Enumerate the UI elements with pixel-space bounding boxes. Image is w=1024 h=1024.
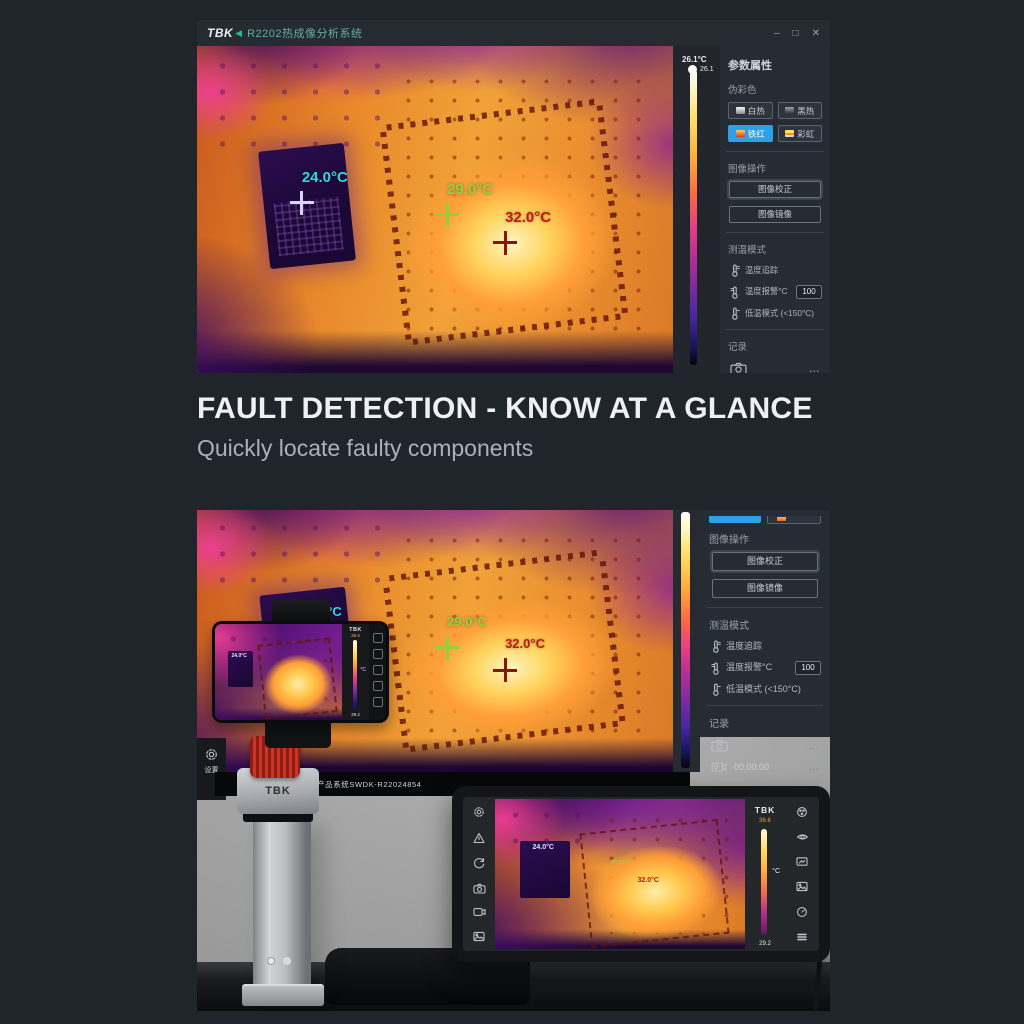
video-record-icon[interactable] (711, 761, 727, 773)
image-mirror-button[interactable]: 图像镜像 (729, 206, 821, 223)
palette-icon[interactable] (796, 806, 808, 818)
divider (707, 607, 823, 608)
palette-button-black-hot[interactable]: 黑热 (778, 102, 823, 119)
thermometer-icon (711, 683, 721, 696)
thermal-image: 24.0°C 29.0°C 32.0°C (197, 46, 673, 373)
export-image-icon[interactable] (796, 856, 808, 867)
temp-marker-32: 32.0°C (493, 658, 517, 682)
gear-icon[interactable] (473, 806, 485, 818)
temp-marker-32: 32.0°C (493, 231, 517, 255)
divider (707, 705, 823, 706)
palette-button-iron-red[interactable]: 铁红 (728, 125, 773, 142)
scale-max-value: 26.1 (700, 66, 714, 73)
temp-marker-29: 29.0°C (435, 203, 459, 227)
palette-button-rainbow-cropped[interactable] (767, 516, 821, 524)
crosshair-icon (493, 231, 517, 255)
thermometer-icon (711, 640, 721, 653)
color-scale-bar (353, 640, 357, 708)
temp-label: 24.0°C (232, 653, 247, 659)
temp-alarm-row[interactable]: 温度报警°C 100 (709, 661, 821, 675)
white-hot-icon (736, 107, 745, 114)
low-temp-mode-row[interactable]: 低温模式 (<150°C) (709, 683, 821, 696)
image-correction-button[interactable]: 图像校正 (712, 552, 818, 571)
temp-tracking-row[interactable]: 温度追踪 (728, 264, 822, 277)
tablet-thermal-image: 24.0°C 29.0°C 32.0°C (495, 799, 745, 949)
window-controls: – □ ✕ (774, 28, 820, 39)
temp-marker-29: 29.0°C (435, 636, 459, 660)
tablet-right-toolbar (785, 797, 819, 951)
temp-alarm-row[interactable]: 温度报警°C 100 (728, 285, 822, 299)
title-bar: TBK ◀ R2202热成像分析系统 – □ ✕ (197, 20, 830, 46)
temp-label: 32.0°C (505, 209, 551, 226)
menu-icon[interactable] (796, 932, 808, 942)
pseudo-color-label: 伪彩色 (728, 82, 822, 96)
window-title: R2202热成像分析系统 (247, 25, 362, 41)
scale-max-value: 36.6 (745, 818, 785, 824)
phone-color-scale: TBK 36.6 °C 29.2 (342, 624, 369, 720)
divider (726, 232, 824, 233)
iron-red-icon (736, 130, 745, 137)
warning-icon[interactable] (473, 832, 485, 844)
snapshot-more-button[interactable]: ... (808, 741, 819, 751)
record-video-row: 00:00:00 ... (709, 761, 821, 773)
monitor-product-label: 产品系统SWDK-R22024854 (317, 779, 422, 790)
stand-base-feet (242, 984, 324, 1006)
scale-min-value: 29.2 (342, 712, 369, 717)
phone-screen: 24.0°C TBK 36.6 °C 29.2 (215, 624, 386, 720)
temp-label: 24.0°C (533, 844, 554, 851)
crosshair-icon (290, 191, 314, 215)
phone-thermal-image: 24.0°C (215, 624, 342, 720)
image-correction-button[interactable]: 图像校正 (729, 181, 821, 198)
crosshair-icon (435, 203, 459, 227)
image-ops-label: 图像操作 (709, 531, 821, 546)
tablet-screen: 24.0°C 29.0°C 32.0°C TBK 36.6 °C 29.2 (463, 797, 819, 951)
palette-button-rainbow[interactable]: 彩虹 (778, 125, 823, 142)
measure-mode-label: 测温模式 (728, 242, 822, 256)
phone-toolbar-icon[interactable] (373, 697, 383, 707)
phone-device: 24.0°C TBK 36.6 °C 29.2 (212, 621, 389, 723)
settings-panel: 参数属性 伪彩色 白热 黑热 铁红 彩虹 (720, 46, 830, 373)
color-scale-bar (761, 829, 767, 935)
logo-arrow-icon: ◀ (235, 28, 242, 39)
palette-grid: 白热 黑热 铁红 彩虹 (728, 102, 822, 142)
video-icon[interactable] (473, 907, 486, 917)
gear-icon[interactable] (205, 748, 218, 761)
snapshot-row: ... (709, 739, 821, 752)
dial-icon[interactable] (796, 906, 808, 918)
temp-label: 29.0°C (610, 859, 630, 866)
minimize-icon[interactable]: – (774, 28, 780, 39)
temp-label: 32.0°C (505, 636, 545, 651)
app-logo: TBK (207, 26, 233, 40)
divider (726, 151, 824, 152)
app-body: 24.0°C 29.0°C 32.0°C 26.1°C 26.1 参数属性 伪彩… (197, 46, 830, 373)
temp-label: 29.0°C (447, 181, 493, 198)
record-timer: 00:00:00 (734, 762, 769, 772)
temp-label: 32.0°C (638, 877, 659, 884)
monitor-color-scale (673, 510, 700, 772)
eye-icon[interactable] (796, 832, 809, 842)
temp-marker-24: 24.0°C (290, 191, 314, 215)
crosshair-icon (493, 658, 517, 682)
stand-column (253, 820, 311, 987)
headline-section: FAULT DETECTION - KNOW AT A GLANCE Quick… (197, 392, 813, 462)
low-temp-mode-row[interactable]: 低温模式 (<150°C) (728, 307, 822, 320)
phone-toolbar-icon[interactable] (373, 665, 383, 675)
headline-subtitle: Quickly locate faulty components (197, 435, 813, 462)
palette-row-cropped (709, 516, 821, 524)
temp-alarm-value[interactable]: 100 (796, 285, 822, 299)
record-more-button[interactable]: ... (808, 762, 819, 772)
thermometer-icon (730, 307, 740, 320)
snapshot-row: ... (728, 362, 822, 373)
temp-alarm-value[interactable]: 100 (795, 661, 821, 675)
scale-min-value: 29.2 (745, 941, 785, 947)
pcb-chip-hotspot (257, 638, 337, 720)
snapshot-more-button[interactable]: ... (809, 364, 820, 374)
temp-tracking-row[interactable]: 温度追踪 (709, 640, 821, 653)
thermometer-icon (711, 662, 721, 675)
stand-top-clamp (272, 600, 330, 623)
palette-button-iron-red-cropped[interactable] (709, 516, 761, 523)
phone-toolbar (369, 624, 386, 720)
tablet-color-scale: TBK 36.6 °C 29.2 (745, 797, 785, 951)
camera-icon[interactable] (473, 883, 486, 894)
stand-brand-label: TBK (265, 785, 291, 797)
pcb-chip-hotspot (382, 549, 626, 753)
panel-title: 参数属性 (728, 57, 822, 73)
rotate-icon[interactable] (473, 857, 485, 869)
color-scale-bar (690, 70, 697, 365)
phone-toolbar-icon[interactable] (373, 681, 383, 691)
temp-label: 29.0°C (447, 614, 487, 629)
maximize-icon[interactable]: □ (793, 28, 799, 39)
scale-unit: °C (772, 868, 780, 875)
tablet-device: 24.0°C 29.0°C 32.0°C TBK 36.6 °C 29.2 (452, 786, 830, 962)
tablet-brand-label: TBK (745, 805, 785, 815)
product-photo: 24.0°C 29.0°C 32.0°C 图像操作 图像校正 图像镜像 测温模式 (197, 510, 830, 1011)
rainbow-icon (785, 130, 794, 137)
camera-icon[interactable] (711, 739, 728, 752)
image-mirror-button[interactable]: 图像镜像 (712, 579, 818, 598)
gallery-icon[interactable] (473, 931, 485, 942)
color-scale-bar (681, 512, 690, 768)
thermometer-icon (730, 264, 740, 277)
monitor-settings-panel: 图像操作 图像校正 图像镜像 测温模式 温度追踪 温度报警°C 100 低温模式… (700, 510, 830, 737)
color-scale-strip: 26.1°C 26.1 (673, 46, 720, 373)
phone-toolbar-icon[interactable] (373, 633, 383, 643)
scale-unit: °C (360, 667, 366, 673)
thermal-app-window: TBK ◀ R2202热成像分析系统 – □ ✕ 24.0°C 29.0°C (197, 20, 830, 373)
thermometer-icon (730, 286, 740, 299)
camera-icon[interactable] (730, 362, 747, 373)
record-label: 记录 (709, 715, 821, 730)
tablet-left-toolbar (463, 797, 495, 951)
palette-button-white-hot[interactable]: 白热 (728, 102, 773, 119)
temp-label: 24.0°C (302, 169, 348, 186)
black-hot-icon (785, 107, 794, 114)
phone-toolbar-icon[interactable] (373, 649, 383, 659)
headline-title: FAULT DETECTION - KNOW AT A GLANCE (197, 392, 813, 426)
close-icon[interactable]: ✕ (812, 28, 820, 39)
scale-max-label: 26.1°C (682, 55, 707, 64)
record-label: 记录 (728, 339, 822, 353)
divider (726, 329, 824, 330)
scale-max-value: 36.6 (342, 633, 369, 638)
measure-mode-label: 测温模式 (709, 617, 821, 632)
crosshair-icon (435, 636, 459, 660)
image-ops-label: 图像操作 (728, 161, 822, 175)
image-icon[interactable] (796, 881, 808, 892)
